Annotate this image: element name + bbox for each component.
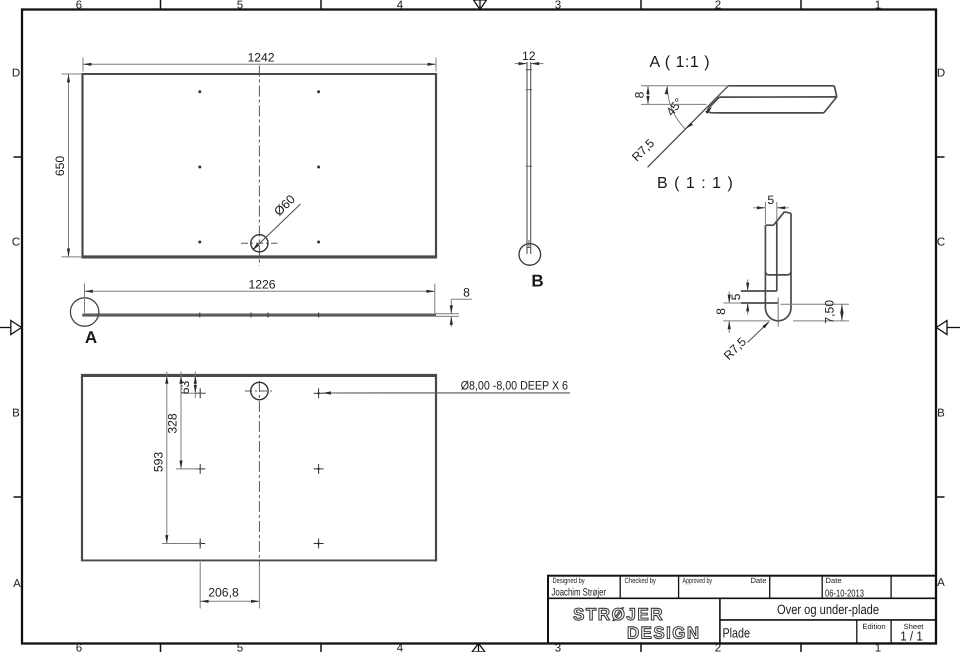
svg-text:B: B xyxy=(531,272,543,291)
svg-text:8: 8 xyxy=(633,91,647,98)
svg-text:8: 8 xyxy=(714,308,728,315)
svg-text:3: 3 xyxy=(555,0,561,12)
svg-text:Edition: Edition xyxy=(862,622,885,631)
svg-text:1: 1 xyxy=(875,0,881,12)
svg-text:Plade: Plade xyxy=(723,625,751,640)
svg-text:A: A xyxy=(937,577,945,589)
svg-text:6: 6 xyxy=(76,0,82,12)
svg-text:A: A xyxy=(13,578,21,590)
svg-text:Checked by: Checked by xyxy=(625,576,657,585)
svg-text:STRØJER: STRØJER xyxy=(573,605,664,624)
svg-text:D: D xyxy=(12,68,20,80)
svg-text:650: 650 xyxy=(53,156,67,177)
svg-text:Designed by: Designed by xyxy=(553,576,585,585)
svg-text:5: 5 xyxy=(237,0,243,12)
svg-text:5: 5 xyxy=(237,643,243,652)
svg-text:Date: Date xyxy=(826,576,842,585)
svg-text:Joachim Strøjer: Joachim Strøjer xyxy=(552,586,607,598)
svg-text:A: A xyxy=(85,328,97,347)
svg-text:12: 12 xyxy=(522,49,536,63)
svg-text:1226: 1226 xyxy=(248,277,275,291)
svg-text:6: 6 xyxy=(76,643,82,652)
svg-text:1242: 1242 xyxy=(247,51,274,65)
svg-text:Approved by: Approved by xyxy=(683,576,713,585)
svg-text:5: 5 xyxy=(767,193,774,207)
svg-text:Over og under-plade: Over og under-plade xyxy=(777,602,879,617)
svg-text:D: D xyxy=(937,68,945,80)
svg-text:Date: Date xyxy=(750,576,766,585)
svg-text:DESIGN: DESIGN xyxy=(627,624,701,643)
svg-text:B ( 1 : 1 ): B ( 1 : 1 ) xyxy=(657,175,734,192)
svg-text:06-10-2013: 06-10-2013 xyxy=(825,588,864,599)
svg-text:C: C xyxy=(12,237,20,249)
svg-text:A ( 1:1 ): A ( 1:1 ) xyxy=(650,54,711,71)
svg-text:8: 8 xyxy=(463,285,470,299)
svg-text:4: 4 xyxy=(397,0,404,12)
svg-text:328: 328 xyxy=(166,413,180,434)
svg-text:1 / 1: 1 / 1 xyxy=(900,629,923,644)
svg-text:B: B xyxy=(12,408,20,420)
svg-text:C: C xyxy=(937,237,945,249)
svg-text:2: 2 xyxy=(715,0,721,12)
svg-text:5: 5 xyxy=(729,293,743,300)
svg-text:206,8: 206,8 xyxy=(208,586,239,600)
svg-text:4: 4 xyxy=(397,643,404,652)
svg-text:Ø8,00 -8,00 DEEP X 6: Ø8,00 -8,00 DEEP X 6 xyxy=(461,378,568,392)
svg-text:593: 593 xyxy=(151,452,165,473)
svg-text:7,50: 7,50 xyxy=(823,300,837,324)
svg-text:B: B xyxy=(937,408,945,420)
